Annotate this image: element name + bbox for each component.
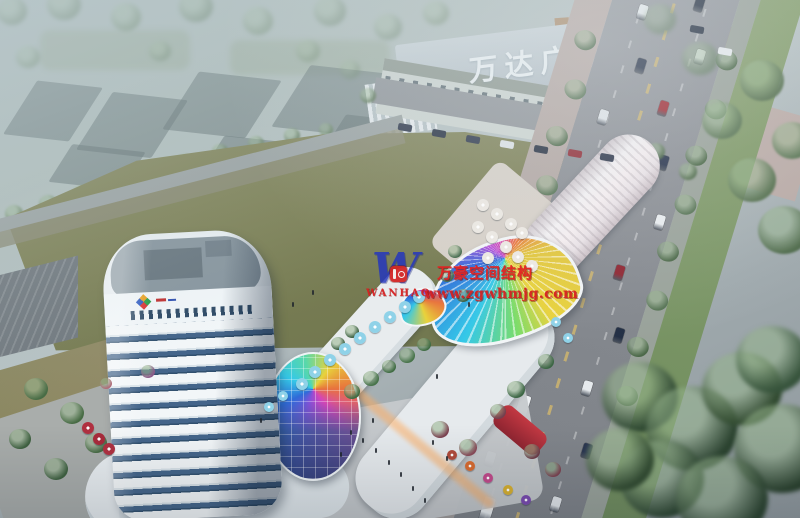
- wanhao-logo-badge-icon: [390, 266, 407, 282]
- aerial-architectural-rendering: 万达广场: [0, 0, 800, 518]
- badge-glyph: [393, 269, 396, 279]
- watermark-company-name: 万豪空间结构: [437, 262, 533, 283]
- badge-glyph: [398, 271, 405, 278]
- watermark-logo-word: WANHAO: [366, 288, 431, 299]
- watermark-website: www.zgwhmjg.com: [424, 286, 578, 302]
- watermark: W WANHAO 万豪空间结构 www.zgwhmjg.com: [0, 0, 800, 518]
